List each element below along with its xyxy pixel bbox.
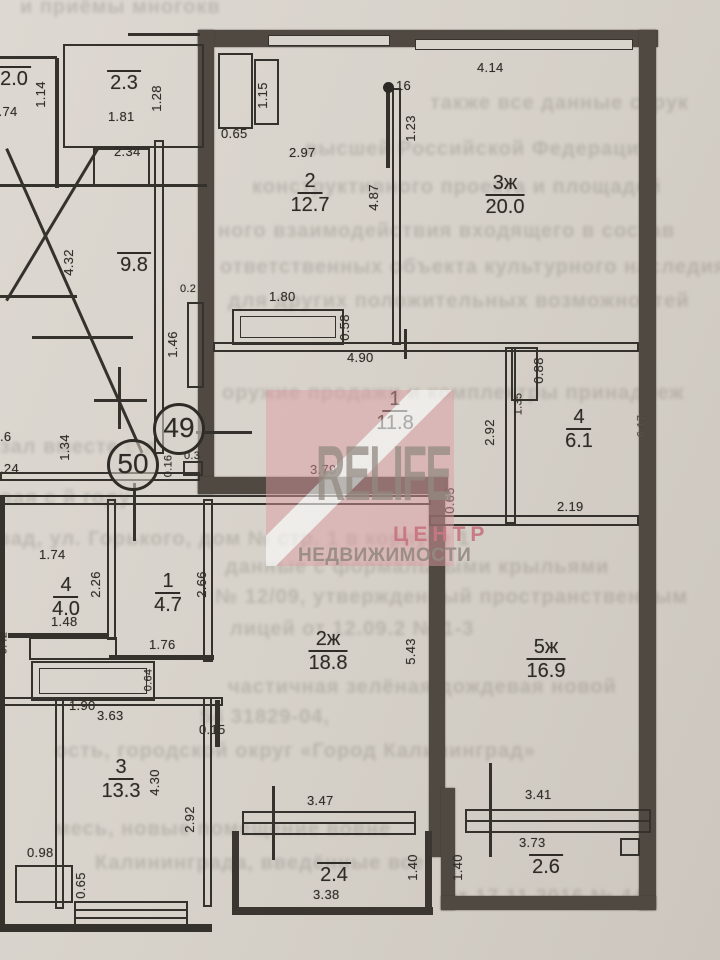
window-line: [465, 820, 651, 822]
bleed-text: Калининграда, введённые все: [95, 852, 425, 875]
dim-label: 1.23: [403, 115, 418, 142]
dim-label: 3.63: [97, 708, 124, 723]
dim-label: 0.64: [142, 669, 154, 692]
dim-label: 4.90: [347, 350, 374, 365]
room-label: 2.0: [0, 66, 31, 90]
room-number: 2ж: [309, 628, 348, 652]
wall: [109, 655, 214, 660]
dim-label: 16: [396, 78, 411, 93]
dim-label: 1.40: [450, 854, 465, 881]
room-label: 3 13.3: [102, 756, 141, 802]
dim-label: 2.66: [194, 571, 209, 598]
bleed-text: № 12/09, утвержденный пространственным: [215, 586, 688, 609]
window-mullion: [489, 763, 492, 857]
wall: [0, 495, 5, 930]
room-number: 2: [297, 170, 322, 194]
dim-label: 0.65: [221, 126, 248, 141]
dim-label: 0.98: [27, 845, 54, 860]
dim-label: 5.43: [403, 638, 418, 665]
room-area: 2.4: [317, 862, 351, 886]
room-number: 1: [155, 570, 180, 594]
room-area: 18.8: [309, 652, 348, 674]
dim-label: 1.34: [57, 434, 72, 461]
dim-label: 0.58: [337, 314, 352, 341]
wall-detail: [620, 838, 640, 856]
wall: [154, 140, 164, 454]
wall-thick-bottom: [441, 896, 656, 910]
window-line: [74, 909, 188, 911]
dim-label: 3.38: [313, 887, 340, 902]
dim-label: 1.76: [149, 637, 176, 652]
dim-label: 1.90: [69, 698, 96, 713]
dim-label: 3.47: [307, 793, 334, 808]
dim-label: 0.42: [0, 632, 9, 655]
wall: [0, 56, 57, 59]
room-label: 5ж 16.9: [527, 636, 566, 682]
room-area: 2.6: [529, 854, 563, 878]
dim-label: 2.97: [289, 145, 316, 160]
room-area: 20.0: [486, 196, 525, 218]
balcony-wall: [425, 831, 432, 915]
wall-thick-right: [639, 30, 656, 910]
dim-label: 4.32: [61, 249, 76, 276]
dim-label: 6.17: [635, 415, 647, 438]
room-area: 16.9: [527, 660, 566, 682]
room-label: 2ж 18.8: [309, 628, 348, 674]
room-label: 2 12.7: [291, 170, 330, 216]
dim-label: 1.14: [33, 81, 48, 108]
dim-label: 1.80: [269, 289, 296, 304]
window-mullion: [272, 786, 275, 860]
window: [415, 39, 633, 50]
room-number: 3ж: [486, 172, 525, 196]
dim-label: 2.19: [557, 499, 584, 514]
dim-label: 2.92: [182, 806, 197, 833]
stair-line: [0, 295, 77, 298]
room-label: 1 4.7: [154, 570, 182, 616]
room-area: 6.1: [565, 430, 593, 452]
wall: [386, 92, 390, 168]
room-outline: [63, 44, 204, 148]
wall: [0, 697, 223, 706]
dim-label: 0.2: [180, 283, 196, 295]
bleed-text: и приёмы многокв: [20, 0, 221, 19]
room-label: 4 4.0: [52, 574, 80, 620]
door-tick: [94, 399, 147, 402]
window-line: [242, 822, 416, 824]
door-tick: [118, 367, 121, 429]
room-area: 4.7: [154, 594, 182, 616]
column-mark-dot: [383, 82, 394, 93]
dim-label: 0.88: [531, 357, 546, 384]
room-number: 4: [566, 406, 591, 430]
dim-label: 2.92: [482, 419, 497, 446]
door-tick: [404, 329, 407, 359]
stair-diagonal: [5, 146, 100, 301]
wall-detail: [183, 461, 203, 476]
dim-label: 1.81: [108, 109, 135, 124]
dim-label: 0.15: [199, 722, 226, 737]
closet-outline: [15, 865, 73, 903]
dim-label: 4.14: [477, 60, 504, 75]
dim-label: 0.16: [162, 455, 174, 478]
room-area: 9.8: [117, 252, 151, 276]
window-line: [74, 917, 188, 919]
dim-label: 1.15: [255, 82, 270, 109]
window: [74, 901, 188, 927]
balcony-wall: [232, 831, 239, 915]
room-area: 4.0: [52, 598, 80, 620]
window: [268, 35, 390, 46]
wall-thick-balcony: [441, 788, 455, 910]
bleed-text: ного взаимодействия входящего в состав: [218, 220, 675, 243]
dim-label: .6: [0, 429, 11, 444]
dim-label: 4.87: [366, 184, 381, 211]
room-label: 4 6.1: [565, 406, 593, 452]
wall: [107, 499, 116, 640]
dim-label: 3.41: [525, 787, 552, 802]
shaft-outline: [218, 53, 253, 129]
dim-label: 3.73: [519, 835, 546, 850]
dim-label: 0.65: [73, 872, 88, 899]
dim-label: 1.28: [149, 85, 164, 112]
room-label: 2.6: [529, 854, 563, 878]
room-area: 2.0: [0, 66, 31, 90]
dim-label: 4.30: [147, 769, 162, 796]
room-label: 9.8: [117, 252, 151, 276]
dim-label: 1.46: [165, 331, 180, 358]
room-number: 5ж: [527, 636, 566, 660]
dim-label: 2.34: [114, 144, 141, 159]
floor-plan-photo: и приёмы многокв также все данные струк …: [0, 0, 720, 960]
wall: [392, 88, 401, 345]
room-label: 2.3: [107, 70, 141, 94]
stair-line: [32, 336, 133, 339]
watermark-subtitle-1: ЦЕНТР: [393, 523, 489, 547]
dim-label: 1.74: [39, 547, 66, 562]
stair-diagonal: [5, 148, 143, 453]
dim-label: 1.74: [0, 104, 18, 119]
unit-number-50: 50: [107, 439, 159, 491]
closet-outline: [29, 637, 117, 660]
watermark-brand: RELIFE: [316, 428, 451, 519]
shaft-outline: [187, 302, 204, 388]
room-label: 2.4: [317, 862, 351, 886]
unit-number-49: 49: [153, 403, 205, 455]
door-tick: [133, 483, 136, 541]
dim-label: 1.35: [512, 393, 524, 416]
wall: [55, 58, 59, 188]
balcony-wall: [232, 907, 433, 915]
room-number: 3: [108, 756, 133, 780]
closet-outline: [39, 668, 147, 694]
dim-label: 2.26: [88, 571, 103, 598]
closet-outline: [240, 316, 336, 338]
dim-label: .24: [0, 461, 19, 476]
watermark-subtitle-2: НЕДВИЖИМОСТИ: [298, 545, 471, 567]
room-number: 4: [53, 574, 78, 598]
room-area: 13.3: [102, 780, 141, 802]
bleed-text: высшей Российской Федерации: [305, 138, 653, 161]
room-area: 12.7: [291, 194, 330, 216]
wall: [128, 33, 200, 36]
room-label: 3ж 20.0: [486, 172, 525, 218]
room-area: 2.3: [107, 70, 141, 94]
dim-label: 1.40: [405, 854, 420, 881]
